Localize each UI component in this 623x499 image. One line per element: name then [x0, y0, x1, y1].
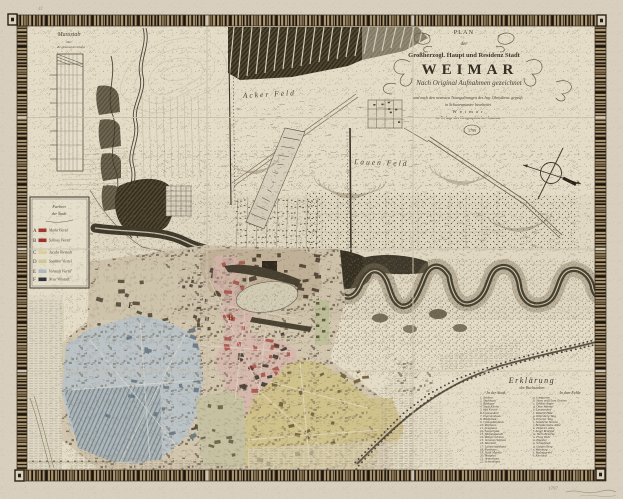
svg-text:1797: 1797	[548, 487, 559, 492]
svg-text:41: 41	[38, 7, 43, 12]
